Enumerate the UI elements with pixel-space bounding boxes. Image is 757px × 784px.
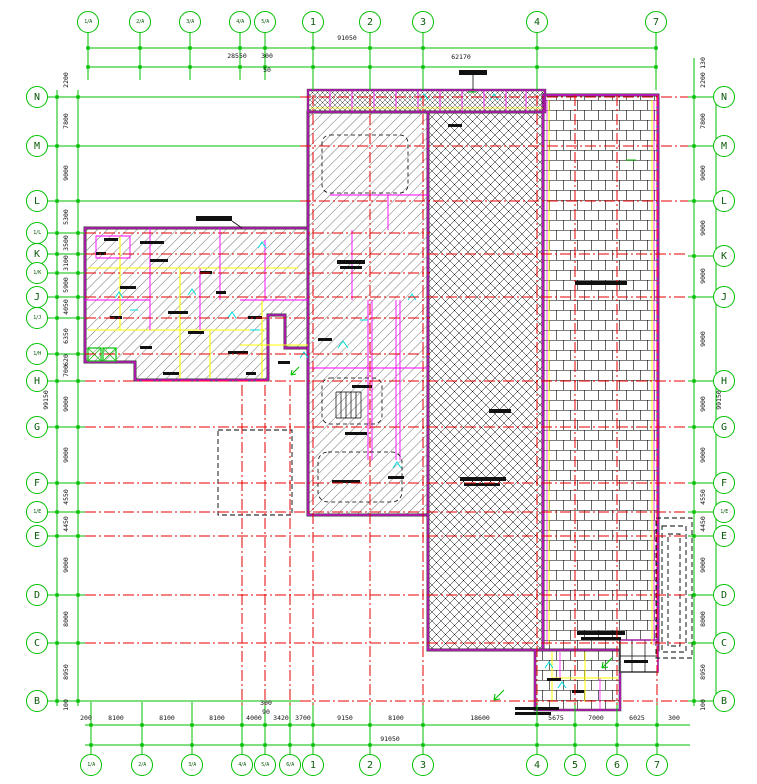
dimension-label: 8000 bbox=[700, 611, 707, 627]
dimension-label: 7800 bbox=[700, 113, 707, 129]
axis-bubble-D: D bbox=[713, 584, 735, 606]
axis-bubble-F: F bbox=[713, 472, 735, 494]
axis-bubble-4: 4 bbox=[526, 754, 548, 776]
dimension-label: 50 bbox=[263, 67, 271, 74]
axis-label: M bbox=[34, 141, 40, 152]
axis-label: 2 bbox=[367, 760, 373, 771]
axis-bubble-N: N bbox=[26, 86, 48, 108]
cad-floor-plan-viewport: 1/A2/A3/A4/A5/A123471/A2/A3/A4/A5/A6/A12… bbox=[0, 0, 757, 784]
axis-bubble-1-E: 1/E bbox=[26, 501, 48, 523]
dimension-label: 28550 bbox=[227, 53, 247, 60]
annotation-overlay: 1/A2/A3/A4/A5/A123471/A2/A3/A4/A5/A6/A12… bbox=[0, 0, 757, 784]
dimension-label: 8950 bbox=[63, 664, 70, 680]
axis-label: 1/A bbox=[84, 19, 92, 25]
dimension-label: 5675 bbox=[548, 715, 564, 722]
axis-bubble-4-A: 4/A bbox=[229, 11, 251, 33]
axis-label: N bbox=[721, 92, 727, 103]
axis-bubble-D: D bbox=[26, 584, 48, 606]
axis-label: 2/A bbox=[138, 762, 146, 768]
axis-label: K bbox=[721, 251, 727, 262]
dimension-label: 200 bbox=[80, 715, 92, 722]
axis-bubble-2-A: 2/A bbox=[129, 11, 151, 33]
dimension-label: 2200 bbox=[700, 72, 707, 88]
axis-label: 5/A bbox=[261, 762, 269, 768]
dimension-label: 100 bbox=[700, 699, 707, 711]
dimension-label: 4000 bbox=[246, 715, 262, 722]
axis-bubble-6-A: 6/A bbox=[279, 754, 301, 776]
axis-bubble-3-A: 3/A bbox=[181, 754, 203, 776]
axis-bubble-5-A: 5/A bbox=[254, 11, 276, 33]
axis-label: 1/L bbox=[33, 230, 41, 236]
dimension-label: 4050 bbox=[63, 299, 70, 315]
axis-bubble-4: 4 bbox=[526, 11, 548, 33]
axis-bubble-G: G bbox=[26, 416, 48, 438]
axis-bubble-1-J: 1/J bbox=[26, 307, 48, 329]
axis-label: 4 bbox=[534, 760, 540, 771]
axis-bubble-1-A: 1/A bbox=[77, 11, 99, 33]
dimension-label: 100 bbox=[63, 699, 70, 711]
axis-label: F bbox=[721, 478, 727, 489]
axis-bubble-J: J bbox=[713, 286, 735, 308]
axis-label: G bbox=[34, 422, 40, 433]
axis-label: B bbox=[721, 696, 727, 707]
dimension-label: 5900 bbox=[63, 277, 70, 293]
dimension-label: 6350 bbox=[63, 328, 70, 344]
dimension-label: 90 bbox=[262, 709, 270, 716]
axis-bubble-3-A: 3/A bbox=[179, 11, 201, 33]
axis-label: 3/A bbox=[186, 19, 194, 25]
dimension-label: 3100 bbox=[63, 255, 70, 271]
dimension-label: 700 bbox=[63, 365, 70, 377]
axis-label: 7 bbox=[653, 17, 659, 28]
dimension-label: 8100 bbox=[209, 715, 225, 722]
dimension-label: 300 bbox=[260, 700, 272, 707]
dimension-label: 4550 bbox=[700, 489, 707, 505]
axis-bubble-1-A: 1/A bbox=[80, 754, 102, 776]
axis-label: 1 bbox=[310, 17, 316, 28]
dimension-label: 9000 bbox=[700, 447, 707, 463]
axis-label: 7 bbox=[654, 760, 660, 771]
axis-bubble-2-A: 2/A bbox=[131, 754, 153, 776]
dimension-label: 8100 bbox=[159, 715, 175, 722]
axis-label: 5/A bbox=[261, 19, 269, 25]
axis-bubble-1-H: 1/H bbox=[26, 343, 48, 365]
axis-label: B bbox=[34, 696, 40, 707]
axis-bubble-2: 2 bbox=[359, 11, 381, 33]
dimension-label: 5300 bbox=[63, 209, 70, 225]
axis-label: 1 bbox=[310, 760, 316, 771]
axis-bubble-K: K bbox=[713, 245, 735, 267]
axis-label: E bbox=[721, 531, 727, 542]
dimension-label: 9000 bbox=[700, 220, 707, 236]
axis-bubble-7: 7 bbox=[645, 11, 667, 33]
axis-bubble-3: 3 bbox=[412, 754, 434, 776]
axis-label: H bbox=[721, 376, 727, 387]
axis-bubble-1: 1 bbox=[302, 754, 324, 776]
dimension-label: 9000 bbox=[700, 396, 707, 412]
axis-bubble-L: L bbox=[713, 190, 735, 212]
axis-bubble-J: J bbox=[26, 286, 48, 308]
dimension-label: 99150 bbox=[716, 390, 723, 410]
dimension-label: 91050 bbox=[380, 736, 400, 743]
axis-label: 3 bbox=[420, 760, 426, 771]
axis-bubble-5: 5 bbox=[564, 754, 586, 776]
axis-bubble-E: E bbox=[713, 525, 735, 547]
axis-label: 6/A bbox=[286, 762, 294, 768]
axis-bubble-F: F bbox=[26, 472, 48, 494]
dimension-label: 3420 bbox=[273, 715, 289, 722]
axis-bubble-7: 7 bbox=[646, 754, 668, 776]
axis-label: 5 bbox=[572, 760, 578, 771]
axis-label: N bbox=[34, 92, 40, 103]
dimension-label: 300 bbox=[261, 53, 273, 60]
axis-label: 1/K bbox=[33, 270, 41, 276]
axis-bubble-C: C bbox=[26, 632, 48, 654]
axis-label: G bbox=[721, 422, 727, 433]
dimension-label: 9150 bbox=[337, 715, 353, 722]
dimension-label: 8000 bbox=[63, 611, 70, 627]
dimension-label: 2200 bbox=[63, 72, 70, 88]
dimension-label: 3500 bbox=[63, 235, 70, 251]
axis-label: K bbox=[34, 249, 40, 260]
axis-label: F bbox=[34, 478, 40, 489]
axis-label: L bbox=[34, 196, 40, 207]
axis-label: 1/J bbox=[33, 315, 41, 321]
axis-label: L bbox=[721, 196, 727, 207]
axis-label: 4/A bbox=[236, 19, 244, 25]
axis-label: 1/E bbox=[720, 509, 728, 515]
axis-label: 1/E bbox=[33, 509, 41, 515]
dimension-label: 9000 bbox=[700, 331, 707, 347]
axis-label: M bbox=[721, 141, 727, 152]
dimension-label: 9000 bbox=[63, 396, 70, 412]
axis-label: H bbox=[34, 376, 40, 387]
axis-bubble-1: 1 bbox=[302, 11, 324, 33]
axis-label: 4/A bbox=[238, 762, 246, 768]
axis-bubble-6: 6 bbox=[606, 754, 628, 776]
axis-label: 3/A bbox=[188, 762, 196, 768]
dimension-label: 7800 bbox=[63, 113, 70, 129]
axis-bubble-4-A: 4/A bbox=[231, 754, 253, 776]
axis-label: 2/A bbox=[136, 19, 144, 25]
dimension-label: 62170 bbox=[451, 54, 471, 61]
axis-label: J bbox=[721, 292, 727, 303]
dimension-label: 91050 bbox=[337, 35, 357, 42]
axis-label: C bbox=[721, 638, 727, 649]
axis-label: 4 bbox=[534, 17, 540, 28]
dimension-label: 4450 bbox=[63, 516, 70, 532]
dimension-label: 3700 bbox=[295, 715, 311, 722]
dimension-label: 18600 bbox=[470, 715, 490, 722]
axis-label: D bbox=[721, 590, 727, 601]
dimension-label: 4450 bbox=[700, 516, 707, 532]
axis-bubble-H: H bbox=[713, 370, 735, 392]
dimension-label: 9000 bbox=[700, 268, 707, 284]
axis-bubble-1-E: 1/E bbox=[713, 501, 735, 523]
dimension-label: 9000 bbox=[63, 165, 70, 181]
axis-bubble-M: M bbox=[26, 135, 48, 157]
axis-label: E bbox=[34, 531, 40, 542]
axis-bubble-2: 2 bbox=[359, 754, 381, 776]
dimension-label: 300 bbox=[668, 715, 680, 722]
dimension-label: 9000 bbox=[63, 557, 70, 573]
dimension-label: 9000 bbox=[700, 165, 707, 181]
dimension-label: 4550 bbox=[63, 489, 70, 505]
axis-label: 6 bbox=[614, 760, 620, 771]
dimension-label: 9000 bbox=[63, 447, 70, 463]
axis-label: 2 bbox=[367, 17, 373, 28]
axis-bubble-B: B bbox=[26, 690, 48, 712]
axis-bubble-N: N bbox=[713, 86, 735, 108]
axis-label: J bbox=[34, 292, 40, 303]
axis-bubble-M: M bbox=[713, 135, 735, 157]
dimension-label: 8100 bbox=[108, 715, 124, 722]
axis-label: D bbox=[34, 590, 40, 601]
axis-bubble-G: G bbox=[713, 416, 735, 438]
dimension-label: 130 bbox=[700, 57, 707, 69]
axis-bubble-5-A: 5/A bbox=[254, 754, 276, 776]
axis-bubble-C: C bbox=[713, 632, 735, 654]
axis-bubble-L: L bbox=[26, 190, 48, 212]
axis-label: 3 bbox=[420, 17, 426, 28]
axis-bubble-E: E bbox=[26, 525, 48, 547]
axis-bubble-H: H bbox=[26, 370, 48, 392]
axis-bubble-1-L: 1/L bbox=[26, 222, 48, 244]
axis-bubble-1-K: 1/K bbox=[26, 262, 48, 284]
axis-label: 1/A bbox=[87, 762, 95, 768]
axis-bubble-B: B bbox=[713, 690, 735, 712]
dimension-label: 6025 bbox=[629, 715, 645, 722]
dimension-label: 7000 bbox=[588, 715, 604, 722]
dimension-label: 8950 bbox=[700, 664, 707, 680]
axis-label: C bbox=[34, 638, 40, 649]
dimension-label: 9000 bbox=[700, 557, 707, 573]
axis-label: 1/H bbox=[33, 351, 41, 357]
dimension-label: 8100 bbox=[388, 715, 404, 722]
axis-bubble-3: 3 bbox=[412, 11, 434, 33]
dimension-label: 99150 bbox=[43, 390, 50, 410]
